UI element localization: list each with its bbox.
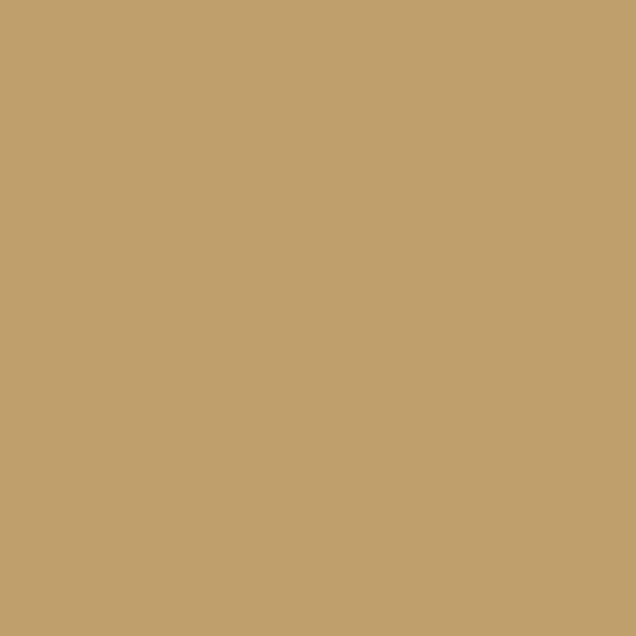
solid-color-background (0, 0, 636, 636)
